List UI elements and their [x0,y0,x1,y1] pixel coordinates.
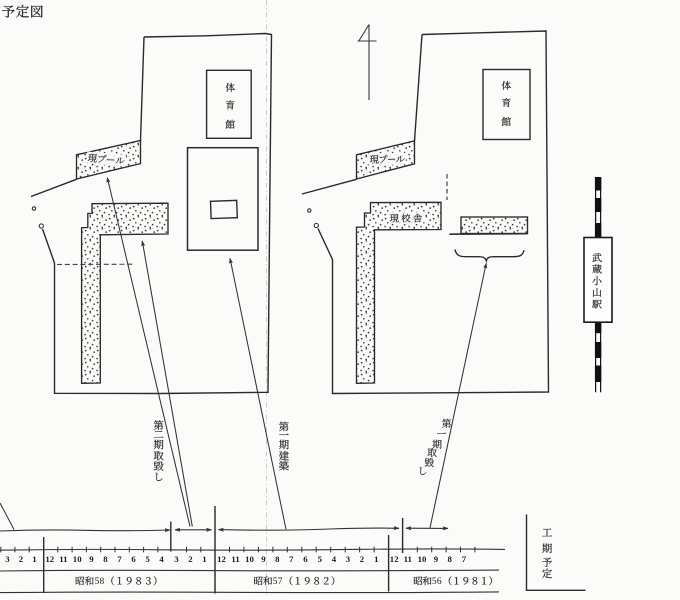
svg-text:12: 12 [45,554,54,564]
svg-text:12: 12 [217,554,226,564]
svg-text:9: 9 [434,554,439,564]
svg-text:4: 4 [159,554,164,564]
svg-text:9: 9 [89,554,94,564]
svg-text:11: 11 [404,554,412,564]
svg-text:4: 4 [332,554,337,564]
svg-text:1: 1 [202,554,206,564]
svg-text:5: 5 [318,554,323,564]
svg-text:3: 3 [174,554,179,564]
svg-text:57: 57 [273,577,283,587]
svg-text:10: 10 [418,554,427,564]
svg-text:8: 8 [447,554,452,564]
svg-text:12: 12 [390,554,399,564]
svg-text:7: 7 [117,554,122,564]
svg-text:1: 1 [32,554,36,564]
svg-text:11: 11 [231,554,239,564]
svg-text:1: 1 [374,554,378,564]
svg-text:5: 5 [145,554,150,564]
svg-text:6: 6 [131,554,136,564]
svg-text:10: 10 [245,554,254,564]
svg-text:2: 2 [19,554,24,564]
svg-text:8: 8 [103,554,108,564]
svg-text:9: 9 [261,554,266,564]
svg-text:7: 7 [462,554,467,564]
svg-text:8: 8 [275,554,280,564]
svg-text:56: 56 [432,577,442,587]
svg-text:2: 2 [360,554,365,564]
svg-text:3: 3 [5,554,10,564]
svg-text:3: 3 [346,554,351,564]
svg-text:58: 58 [95,577,105,587]
svg-text:7: 7 [289,554,294,564]
svg-text:11: 11 [59,554,67,564]
svg-text:6: 6 [303,554,308,564]
svg-text:2: 2 [188,554,193,564]
svg-text:10: 10 [73,554,82,564]
